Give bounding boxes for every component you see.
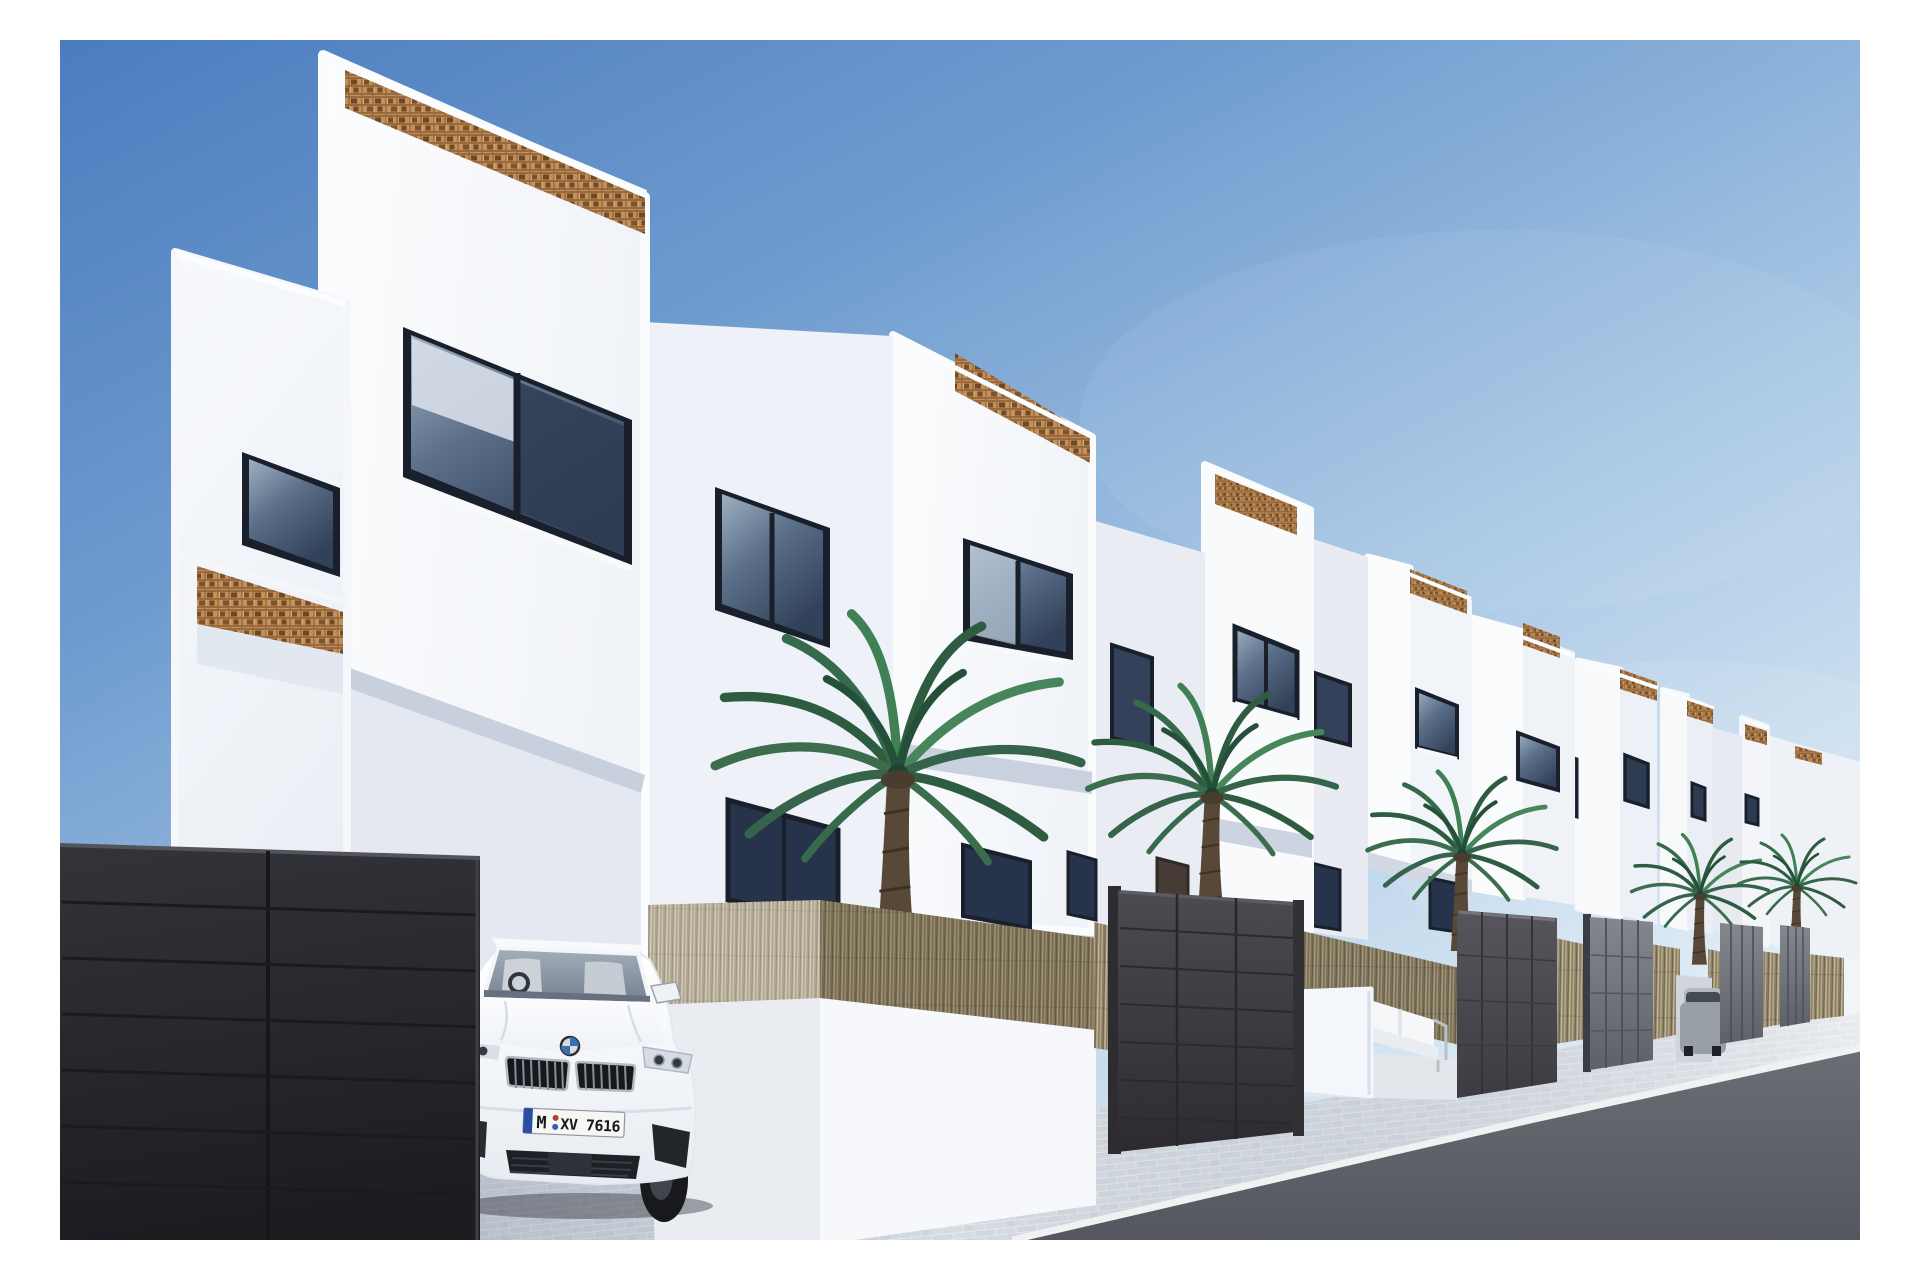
license-plate: M XV 7616	[523, 1108, 625, 1137]
entry-gate-5	[1720, 923, 1763, 1044]
entry-gate-6	[1780, 925, 1810, 1027]
far-wall-sliver	[1844, 958, 1860, 1016]
house-4-side-face	[1368, 557, 1410, 872]
patio-wall	[1294, 989, 1371, 1096]
garden-wall-front-face	[820, 998, 1096, 1245]
intake-center-plate	[548, 1152, 592, 1176]
gate-4-post	[1583, 914, 1591, 1072]
headlight-lens-1	[654, 1055, 664, 1065]
house-7-side-face	[1663, 690, 1687, 928]
car-seat-right	[584, 962, 626, 995]
frame-right	[1860, 0, 1920, 1280]
reed-strip-7	[1808, 954, 1844, 1020]
reed-strip-6	[1761, 951, 1782, 1028]
entry-gate-4	[1583, 914, 1653, 1072]
house-5-side-face	[1472, 618, 1523, 897]
entry-gate-2	[1108, 886, 1304, 1154]
distant-car-wheel-right	[1712, 1046, 1721, 1056]
entry-gate-3	[1457, 910, 1557, 1098]
frame-left	[0, 0, 60, 1280]
plate-eu-band	[523, 1108, 533, 1133]
house-8-window	[1746, 795, 1758, 825]
house-6-side-face	[1578, 661, 1620, 915]
distant-car-wheel-left	[1684, 1046, 1693, 1056]
house-1-ground-window-2	[963, 845, 1030, 928]
frame-top	[0, 0, 1920, 40]
frame-bottom	[0, 1240, 1920, 1280]
headlight-lens-2	[672, 1058, 682, 1068]
house-7-window	[1692, 783, 1705, 820]
scene-svg: M XV 7616	[0, 0, 1920, 1280]
reed-strip-4	[1651, 944, 1680, 1040]
garden-fence-house-1	[648, 900, 1096, 1258]
house-1-ground-window-3	[1068, 852, 1096, 920]
plate-prefix: M	[536, 1113, 547, 1133]
gate-6-leaf	[1780, 925, 1810, 1027]
car-mirror	[651, 982, 681, 1003]
house-2-recess-window	[1112, 645, 1152, 748]
gate-2-post-right	[1293, 900, 1304, 1136]
house-6-window	[1625, 755, 1648, 807]
render-image: M XV 7616	[0, 0, 1920, 1280]
plate-number: XV 7616	[560, 1115, 621, 1136]
foreground-gate	[60, 845, 480, 1240]
